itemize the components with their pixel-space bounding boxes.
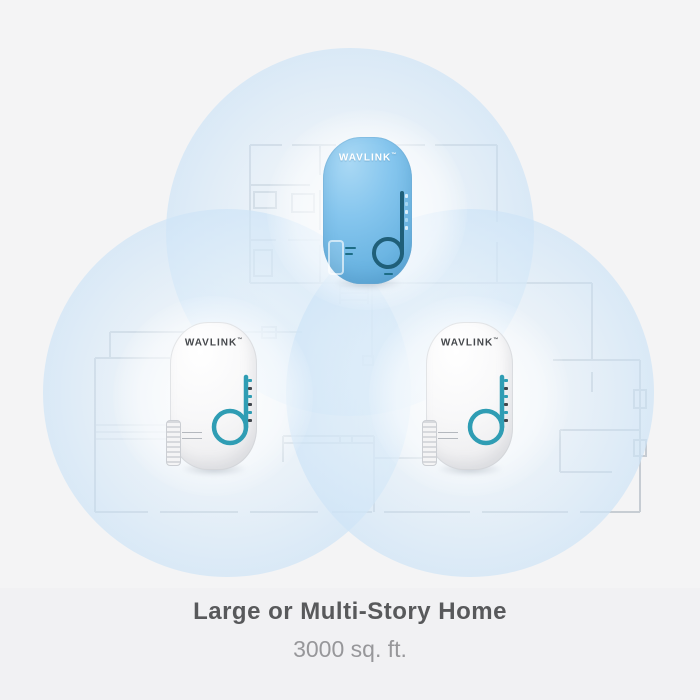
side-dial-labels xyxy=(438,432,458,444)
led-indicators xyxy=(248,379,252,427)
led-indicators xyxy=(504,379,508,427)
extender-body: WAVLINK™ xyxy=(426,322,513,470)
wps-ring-icon xyxy=(426,322,513,470)
wifi-extender-bottom-left: WAVLINK™ xyxy=(170,322,257,470)
side-port-labels xyxy=(345,247,356,259)
side-dial-labels xyxy=(182,432,202,444)
side-dial xyxy=(166,420,181,466)
extender-body: WAVLINK™ xyxy=(323,137,412,284)
wifi-coverage-scene: WAVLINK™ WAVLINK™ xyxy=(0,0,700,700)
led-indicators xyxy=(405,194,408,234)
extender-body: WAVLINK™ xyxy=(170,322,257,470)
wps-label-mark xyxy=(384,273,393,275)
side-dial xyxy=(422,420,437,466)
wps-ring-icon xyxy=(170,322,257,470)
scene-title: Large or Multi-Story Home xyxy=(0,598,700,626)
scene-subtitle: 3000 sq. ft. xyxy=(0,636,700,663)
wifi-extender-bottom-right: WAVLINK™ xyxy=(426,322,513,470)
side-port xyxy=(328,240,344,275)
wifi-extender-top: WAVLINK™ xyxy=(323,137,412,284)
